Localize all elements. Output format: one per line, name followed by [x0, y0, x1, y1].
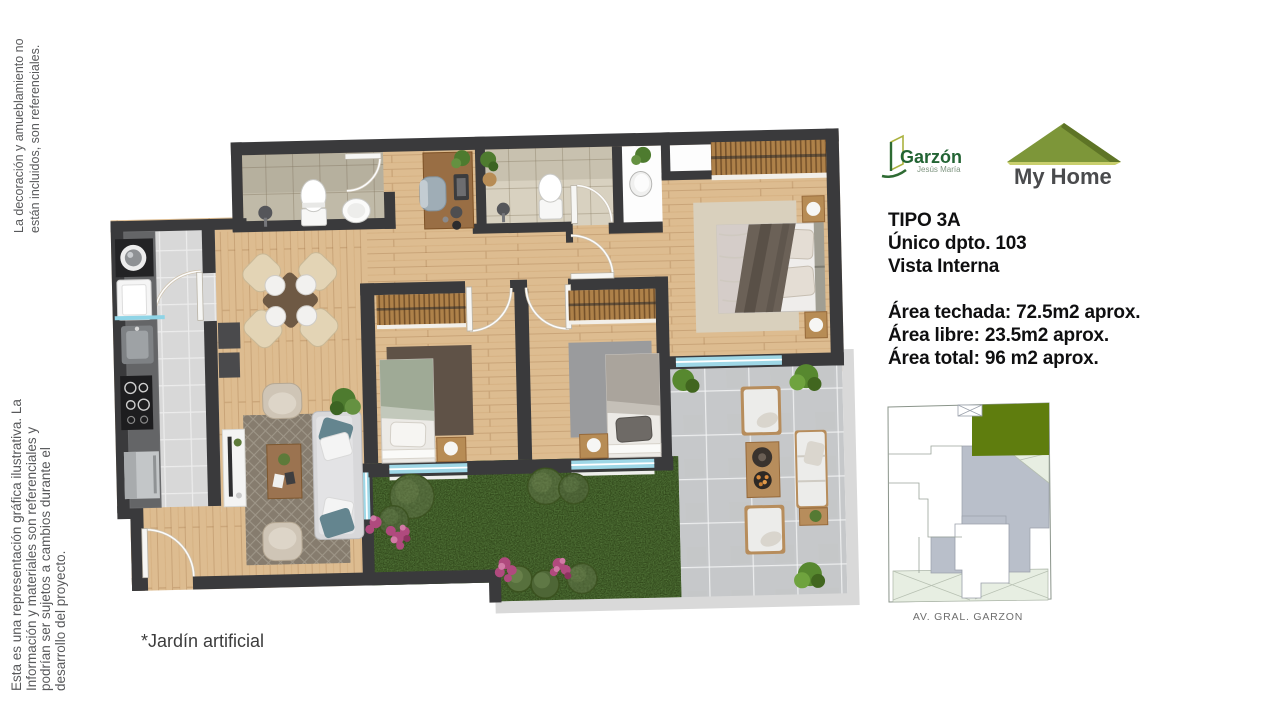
- svg-text:My Home: My Home: [1014, 164, 1112, 189]
- svg-text:Jesús María: Jesús María: [917, 165, 961, 174]
- svg-text:Garzón: Garzón: [900, 147, 962, 167]
